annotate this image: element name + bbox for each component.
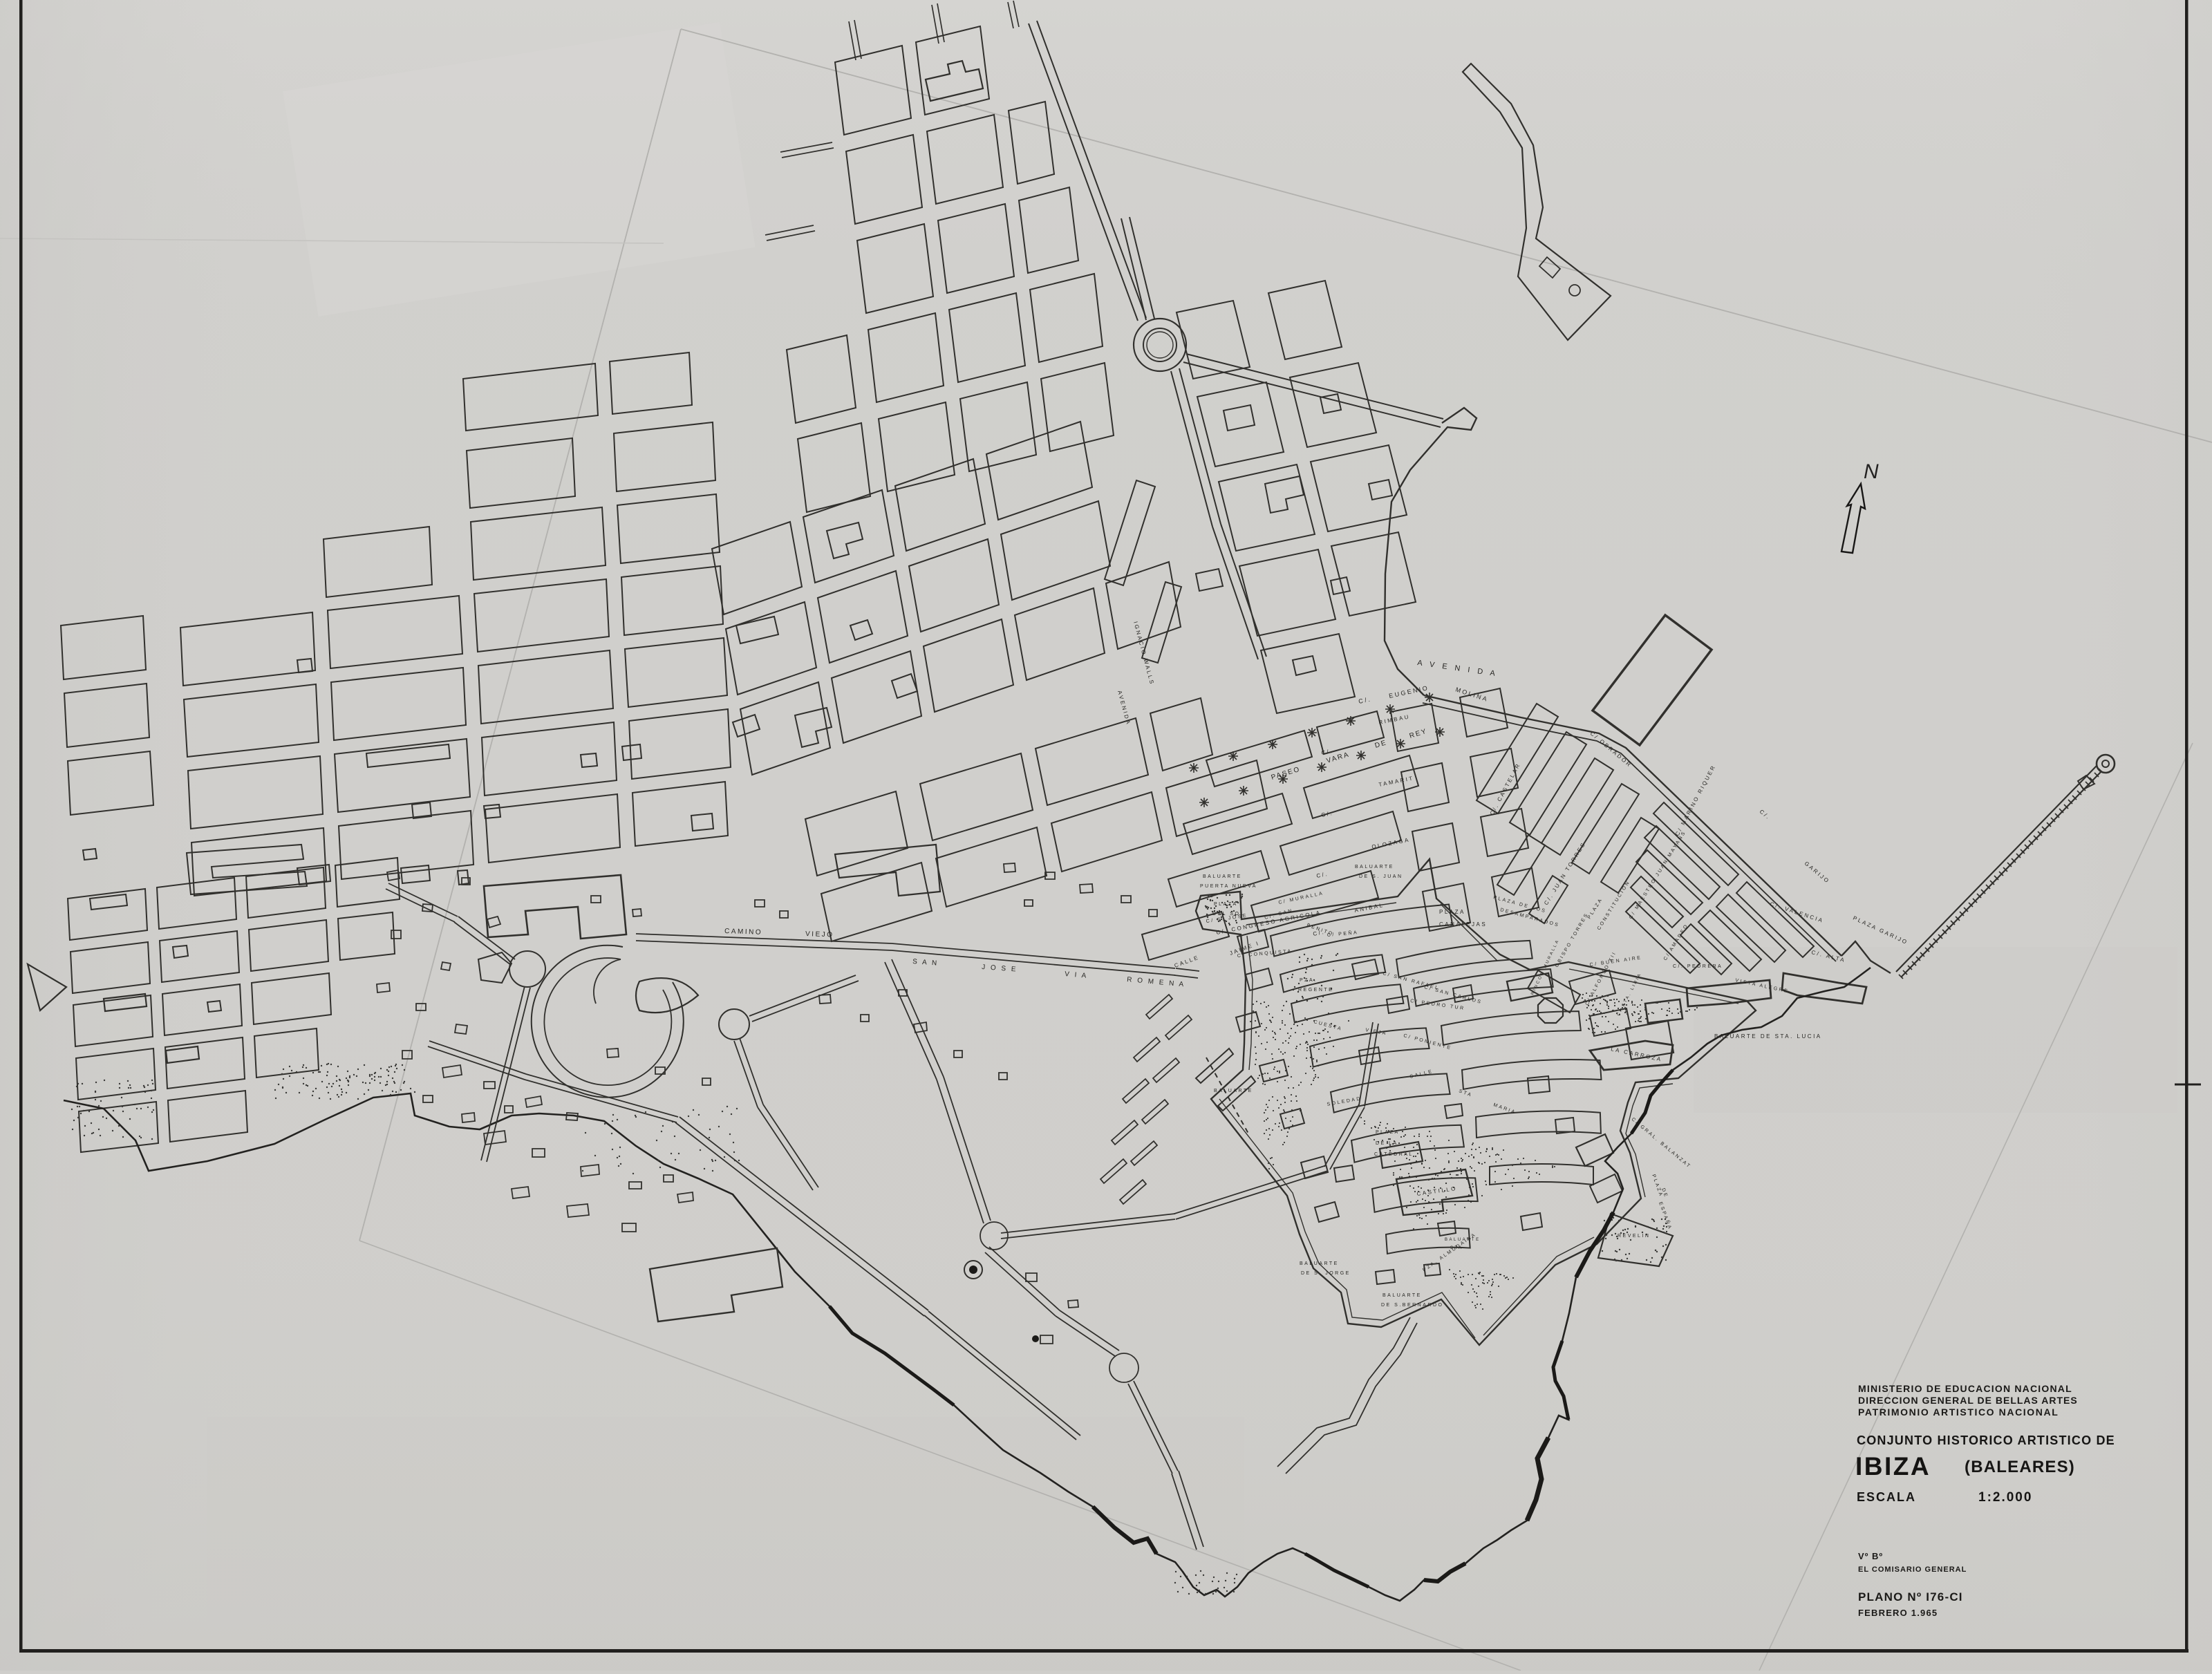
svg-text:BALUARTE: BALUARTE bbox=[1355, 865, 1394, 869]
svg-text:PATRIMONIO ARTISTICO NACIO: PATRIMONIO ARTISTICO NACIONAL bbox=[1858, 1407, 2059, 1418]
svg-text:(BALEARES): (BALEARES) bbox=[1965, 1458, 2075, 1476]
svg-text:CANALEJAS: CANALEJAS bbox=[1439, 921, 1487, 928]
svg-text:REVELIN: REVELIN bbox=[1618, 1234, 1650, 1239]
svg-text:BALUARTE: BALUARTE bbox=[1300, 1261, 1339, 1266]
svg-text:DE LA: DE LA bbox=[1376, 1141, 1398, 1146]
svg-text:BALUARTE: BALUARTE bbox=[1382, 1293, 1422, 1298]
svg-text:CATEDRAL: CATEDRAL bbox=[1374, 1152, 1414, 1157]
svg-text:PLANO Nº I76-CI: PLANO Nº I76-CI bbox=[1858, 1590, 1963, 1604]
svg-text:CAMINO: CAMINO bbox=[724, 928, 762, 937]
svg-text:C/. PEDRERA: C/. PEDRERA bbox=[1673, 964, 1723, 969]
svg-text:DIRECCION GENERAL DE BELLAS: DIRECCION GENERAL DE BELLAS ARTES bbox=[1858, 1395, 2078, 1406]
svg-text:BALUARTE: BALUARTE bbox=[1203, 874, 1242, 879]
svg-text:DE S. JORGE: DE S. JORGE bbox=[1301, 1271, 1351, 1276]
svg-text:DEL SOL: DEL SOL bbox=[1212, 912, 1245, 916]
svg-text:1:2.000: 1:2.000 bbox=[1978, 1490, 2032, 1505]
svg-text:N: N bbox=[1864, 460, 1879, 483]
svg-text:PUERTA NUEVA: PUERTA NUEVA bbox=[1200, 884, 1257, 889]
svg-text:ESCALA: ESCALA bbox=[1857, 1490, 1916, 1504]
svg-text:BALUARTE: BALUARTE bbox=[1445, 1238, 1481, 1242]
svg-text:VIEJO: VIEJO bbox=[805, 930, 834, 939]
svg-text:BALUARTE DE STA. LUCIA: BALUARTE DE STA. LUCIA bbox=[1714, 1033, 1822, 1040]
svg-text:CONJUNTO HISTORICO ARTISTICO: CONJUNTO HISTORICO ARTISTICO DE bbox=[1857, 1433, 2115, 1447]
svg-text:EL COMISARIO GENERAL: EL COMISARIO GENERAL bbox=[1858, 1565, 1967, 1574]
svg-text:STA: STA bbox=[1450, 1246, 1463, 1250]
svg-text:BALUARTE: BALUARTE bbox=[1214, 1089, 1253, 1093]
svg-text:MINISTERIO DE EDUCACION NAC: MINISTERIO DE EDUCACION NACIONAL bbox=[1858, 1383, 2072, 1394]
svg-text:FEBRERO 1.965: FEBRERO 1.965 bbox=[1858, 1608, 1938, 1618]
svg-text:PLAZA: PLAZA bbox=[1376, 1130, 1400, 1135]
svg-text:DE S.BERNARDO: DE S.BERNARDO bbox=[1381, 1303, 1443, 1308]
svg-text:Vº Bº: Vº Bº bbox=[1858, 1551, 1883, 1561]
svg-text:PZA.: PZA. bbox=[1300, 978, 1318, 983]
svg-text:IBIZA: IBIZA bbox=[1855, 1452, 1931, 1480]
svg-text:PLAZA: PLAZA bbox=[1214, 902, 1238, 907]
svg-text:REGENTE: REGENTE bbox=[1298, 988, 1333, 993]
svg-text:DE S. JUAN: DE S. JUAN bbox=[1359, 874, 1403, 879]
svg-text:PLAZA: PLAZA bbox=[1439, 909, 1465, 915]
